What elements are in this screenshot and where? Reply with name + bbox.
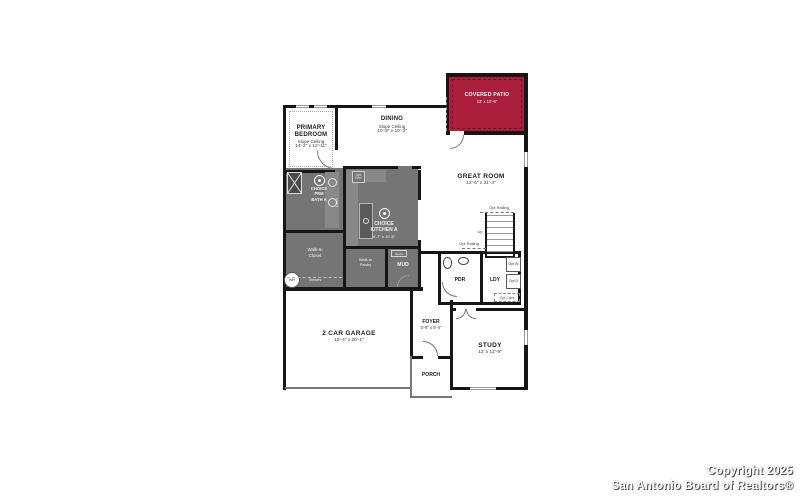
choice-option-icon	[379, 208, 390, 219]
stairs-up-label: Up	[474, 230, 486, 234]
wall	[418, 240, 421, 287]
ceiling-break-dashed-line	[446, 97, 447, 131]
room-label-foyer: FOYER 5'-8" x 8'-4"	[412, 319, 450, 331]
door-arc	[450, 135, 464, 149]
copyright-watermark: Copyright 2025 San Antonio Board of Real…	[612, 464, 793, 494]
window	[470, 387, 496, 390]
porch-wall	[410, 356, 412, 398]
room-label-primary-bedroom: PRIMARY BEDROOM Slope Ceiling 14'-2" x 1…	[288, 125, 334, 150]
opt-cabs-label: Opt Cabs	[500, 296, 515, 300]
wall	[524, 73, 528, 135]
copyright-line1: Copyright 2025	[612, 464, 793, 479]
wall	[446, 73, 449, 97]
wall	[412, 166, 421, 169]
wall	[283, 287, 423, 291]
wall	[476, 308, 528, 311]
hooks-label: Hooks	[395, 252, 404, 256]
room-label-dining: DINING Slope Ceiling 10'-9" x 10'-3"	[368, 116, 416, 135]
wall	[446, 73, 528, 77]
wall	[283, 105, 286, 390]
room-label-pdr: PDR	[440, 277, 480, 283]
room-label-walk-in-closet: Walk-In Closet	[290, 247, 340, 258]
door-arc	[423, 341, 438, 356]
door-arc	[466, 309, 476, 319]
patio-inner-dashed-line	[452, 79, 522, 129]
wall	[418, 170, 421, 200]
garage-door-line	[285, 387, 412, 389]
wall	[283, 230, 345, 233]
opt-railing-line	[462, 248, 486, 249]
wall	[420, 251, 440, 254]
window	[524, 330, 528, 345]
window	[296, 105, 309, 108]
opt-elev-label: Opt Elev	[353, 174, 364, 181]
shower-icon	[287, 172, 302, 194]
porch-edge-line	[410, 396, 452, 398]
shelves-label: Shelves	[294, 279, 336, 283]
room-label-garage: 2 CAR GARAGE 19'-4" x 20'-1"	[303, 330, 395, 344]
opt-cabs-box: Opt Cabs	[494, 293, 520, 302]
room-label-porch: PORCH	[413, 372, 449, 378]
floor-plan-canvas: Opt Elev Opt W Opt D Opt Cabs Hooks WH O…	[0, 0, 800, 500]
room-label-mud: MUD	[389, 262, 417, 268]
opt-railing-label: Opt Railing	[452, 242, 486, 246]
wall	[345, 246, 420, 249]
opt-elev-box: Opt Elev	[352, 171, 365, 183]
room-label-ldy: LDY	[482, 277, 508, 283]
wall	[450, 300, 453, 390]
room-label-covered-patio: COVERED PATIO 13' x 10'-6"	[450, 92, 524, 104]
wall	[438, 302, 521, 305]
copyright-line2: San Antonio Board of Realtors®	[612, 479, 793, 494]
window	[524, 152, 528, 167]
choice-option-dot	[383, 212, 386, 215]
toilet-icon	[443, 257, 452, 269]
wall	[335, 105, 338, 150]
room-label-study: STUDY 12' x 12'-9"	[456, 342, 524, 356]
room-label-great-room: GREAT ROOM 12'-6" x 21'-4"	[436, 173, 526, 187]
opt-washer-label: Opt W	[509, 263, 519, 267]
wall	[513, 213, 515, 258]
window	[314, 105, 327, 108]
washer-box: Opt W	[506, 257, 521, 272]
linen-label: Linen	[336, 192, 340, 214]
door-arc	[442, 282, 457, 297]
choice-option-icon	[314, 175, 325, 186]
hooks-box: Hooks	[391, 250, 407, 257]
dryer-box: Opt D	[506, 274, 521, 289]
sink-icon	[458, 257, 469, 265]
opt-railing-line	[480, 212, 514, 213]
front-door-opening	[423, 356, 438, 359]
room-label-choice-prm-bath: CHOICE PRM BATH A	[301, 186, 337, 202]
door-arc	[456, 309, 466, 319]
wall	[345, 166, 398, 169]
opt-dryer-label: Opt D	[509, 280, 518, 284]
room-label-choice-kitchen: CHOICE KITCHEN A 9'-7" x 10'-5"	[352, 221, 416, 239]
staircase	[487, 215, 513, 256]
window	[372, 105, 386, 108]
wall	[385, 248, 388, 289]
choice-option-dot	[318, 179, 321, 182]
opt-railing-label: Opt Railing	[480, 206, 518, 210]
room-label-walk-in-pantry: Walk-in Pantry	[347, 257, 384, 267]
